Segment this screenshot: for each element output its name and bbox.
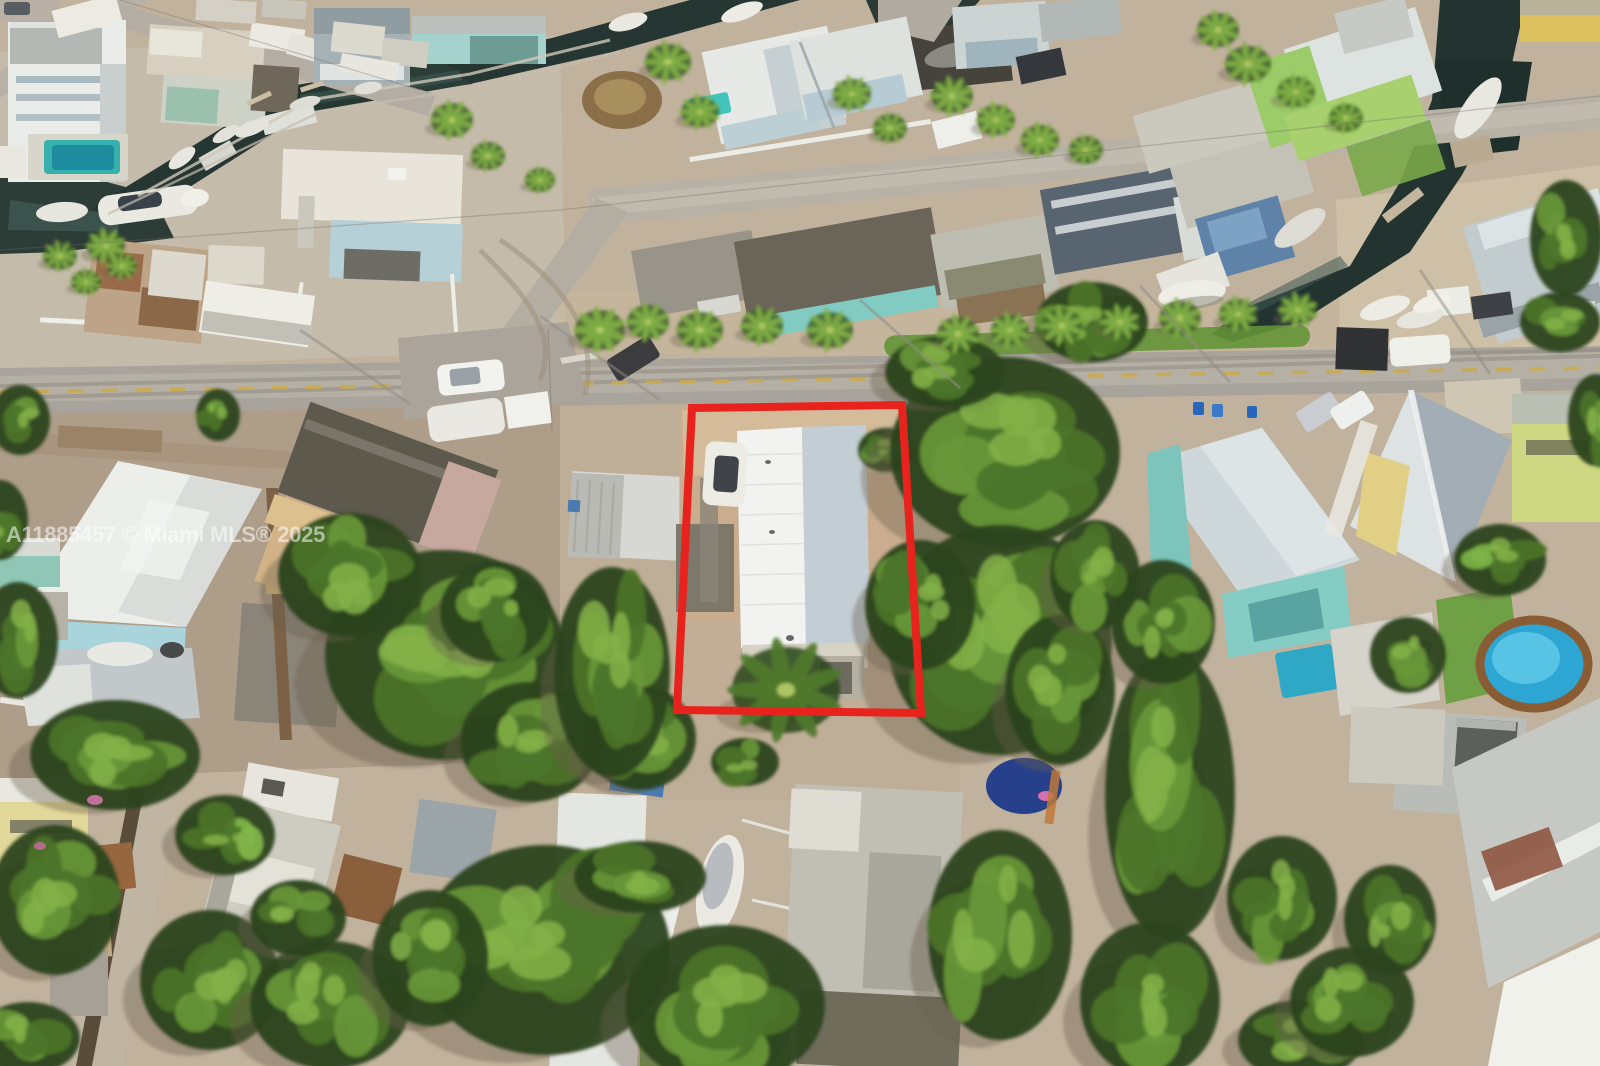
svg-text:A11885457 © Miami MLS® 2025: A11885457 © Miami MLS® 2025 xyxy=(6,522,325,547)
